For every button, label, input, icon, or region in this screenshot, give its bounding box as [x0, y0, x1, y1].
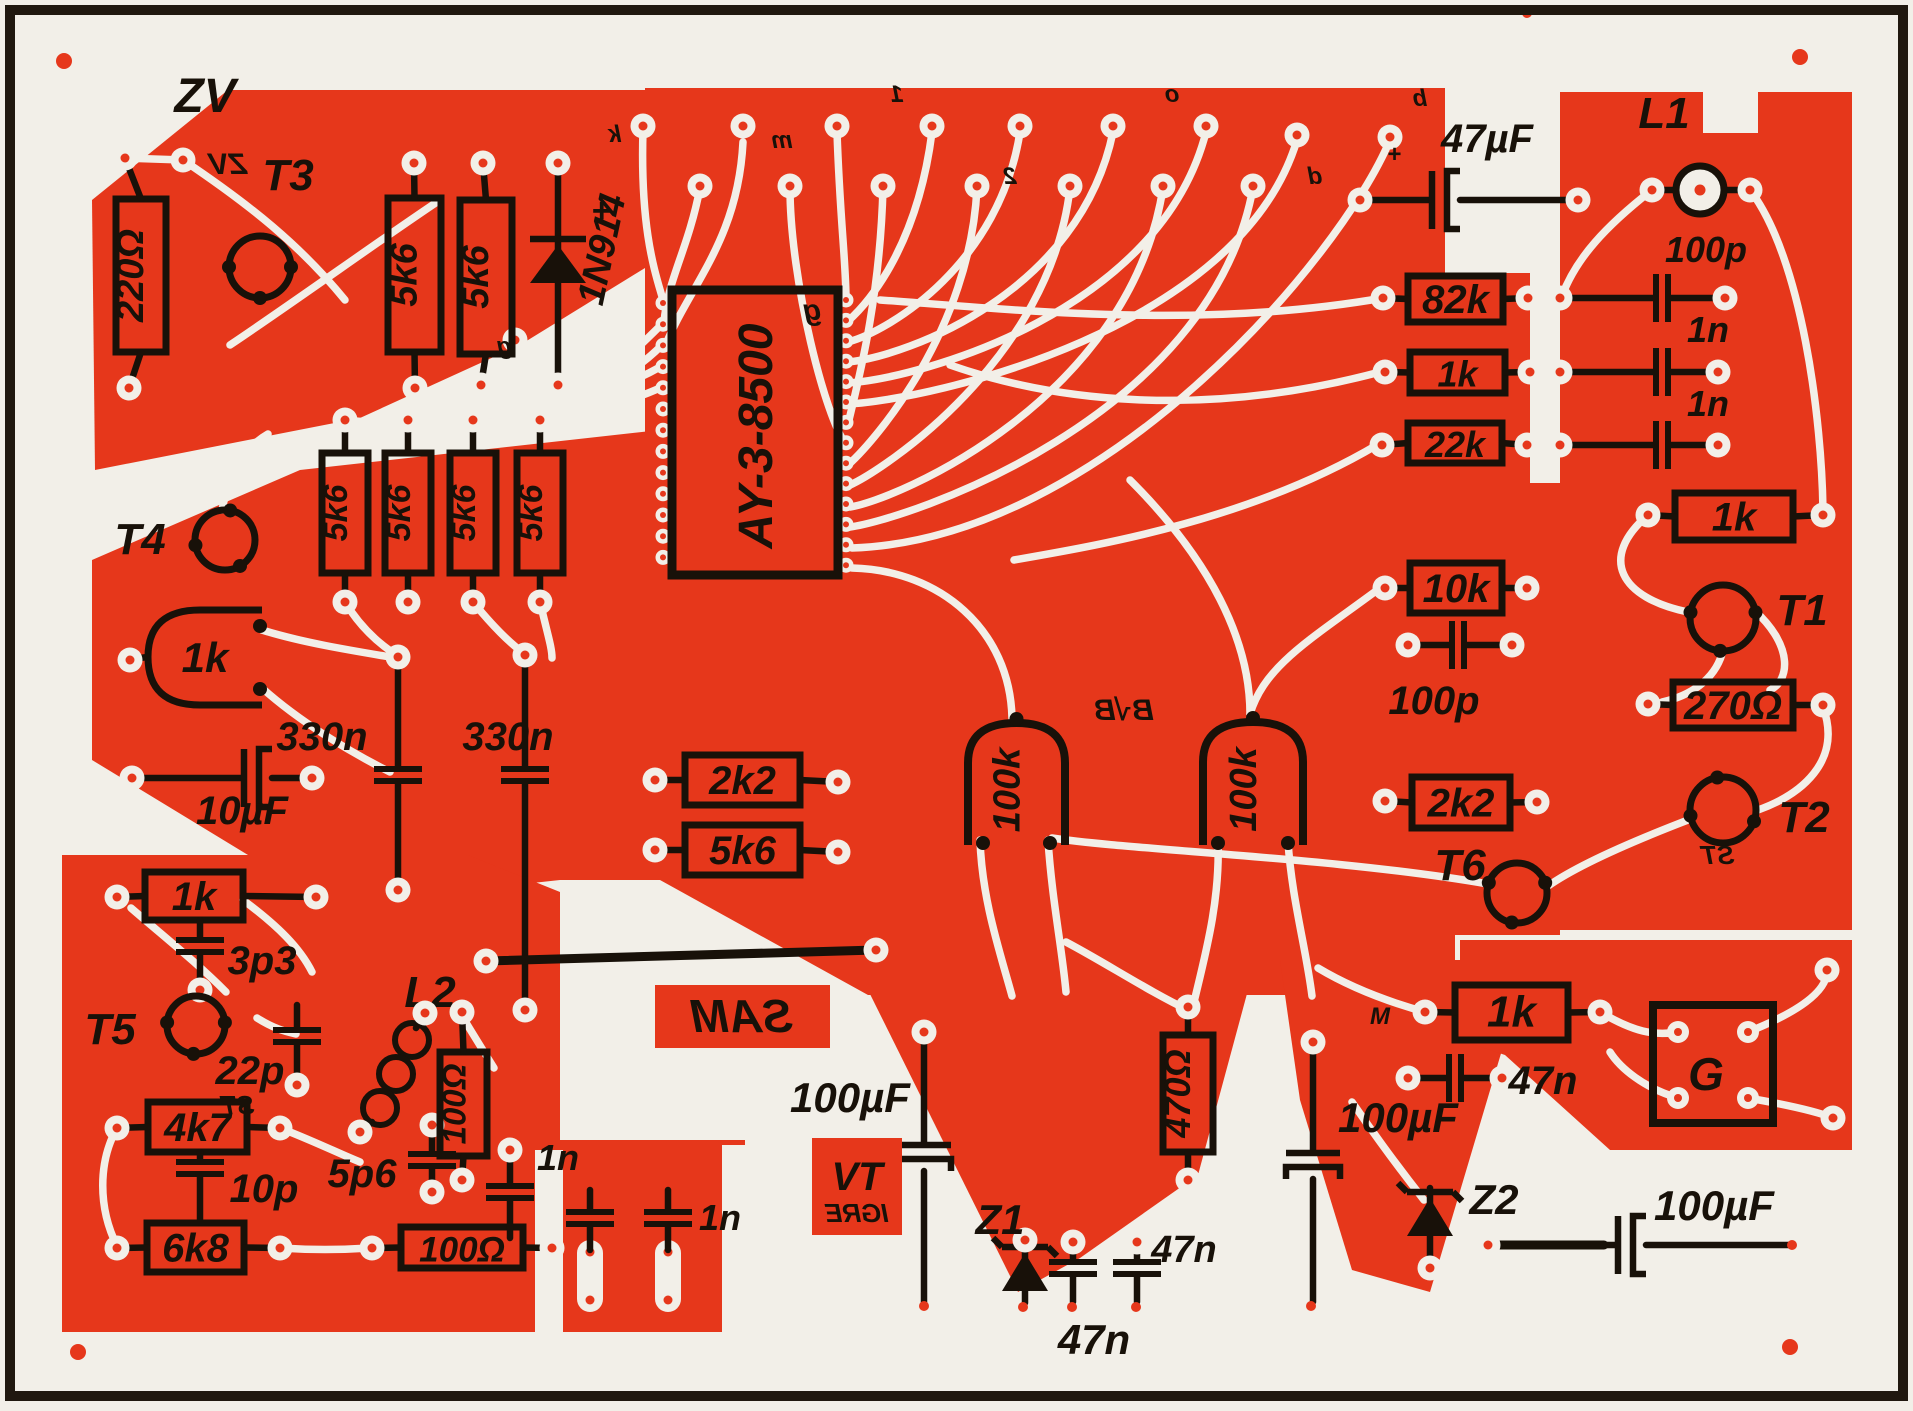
cap-47n-bottom-label: 47n: [1057, 1316, 1130, 1363]
cap-47n-c-label: 47n: [1508, 1059, 1578, 1103]
resistor-1k-top-value: 1k: [1437, 354, 1479, 395]
pad-hole: [521, 651, 530, 660]
resistor-1k-right-value: 1k: [1712, 496, 1758, 540]
resistor-6k8-value: 6k8: [162, 1227, 229, 1271]
designator-t6: T6: [1434, 841, 1486, 890]
cap-330n-2-label: 330n: [462, 715, 553, 759]
pad-hole: [506, 1146, 515, 1155]
resistor-2k2-right-value: 2k2: [1427, 782, 1495, 826]
pad-hole: [1819, 701, 1828, 710]
pad-hole: [843, 542, 849, 548]
pad-hole: [458, 1176, 467, 1185]
pad-hole: [1404, 1074, 1413, 1083]
logo-vt-text: VT: [831, 1155, 886, 1199]
pad-hole: [1596, 1008, 1605, 1017]
designator-z1: Z1: [974, 1196, 1024, 1243]
resistor-5k6-3-value: 5k6: [317, 484, 355, 542]
pad-hole: [312, 893, 321, 902]
pad-hole: [479, 159, 488, 168]
designator-t5: T5: [84, 1005, 136, 1054]
designator-l1: L1: [1638, 89, 1689, 138]
pad-hole: [482, 957, 491, 966]
pad-hole: [394, 653, 403, 662]
cap-10uf-label: 10µF: [196, 789, 290, 833]
pad-hole: [651, 846, 660, 855]
logo-vt-igre: VTIGRE: [812, 1138, 902, 1235]
silk-pad-letter: d: [1306, 163, 1322, 190]
pad-hole: [1674, 1028, 1682, 1036]
transistor-pin: [1713, 644, 1727, 658]
pad-hole: [1644, 511, 1653, 520]
designator-zv: ZV: [172, 70, 239, 123]
pad-hole: [1744, 1094, 1752, 1102]
pad-hole: [536, 416, 545, 425]
pad-hole: [1498, 1074, 1507, 1083]
transistor-pin: [1747, 814, 1761, 828]
pad-hole: [1523, 584, 1532, 593]
trimmer-1k-value: 1k: [182, 634, 231, 681]
pad-hole: [428, 1188, 437, 1197]
resistor-5k6-6-value: 5k6: [512, 484, 550, 542]
cap-100uf-b-label: 100µF: [1338, 1094, 1459, 1141]
pad-hole: [843, 338, 849, 344]
pad-hole: [843, 440, 849, 446]
cap-3p3-label: 3p3: [228, 939, 297, 983]
pad-hole: [1381, 368, 1390, 377]
pad-hole: [843, 419, 849, 425]
transistor-pin: [160, 1015, 174, 1029]
pad-hole: [1508, 641, 1517, 650]
pad-hole: [843, 379, 849, 385]
transistor-pin: [1684, 809, 1698, 823]
transistor-pin: [1748, 605, 1762, 619]
pad-hole: [1069, 1238, 1078, 1247]
pad-hole: [548, 1244, 557, 1253]
drill-mark: [1787, 1240, 1797, 1250]
pad-hole: [1556, 368, 1565, 377]
silk-pad-letter: 2: [1003, 163, 1018, 190]
cap-22p-label: 22p: [215, 1049, 285, 1093]
pad-hole: [1293, 131, 1302, 140]
pad-hole: [1016, 122, 1025, 131]
silk-pad-letter: k: [607, 121, 622, 148]
resistor-5k6-1-value: 5k6: [384, 242, 426, 306]
pad-hole: [394, 886, 403, 895]
pad-hole: [368, 1244, 377, 1253]
transistor-pin: [188, 538, 202, 552]
ic-part-number: AY-3-8500: [730, 323, 783, 549]
pad-hole: [1381, 797, 1390, 806]
routing-gap: [722, 1145, 745, 1335]
pad-hole: [843, 358, 849, 364]
cap-47n-b-label: 47n: [1150, 1229, 1216, 1271]
cap-1n-1-label: 1n: [1687, 309, 1729, 350]
transistor-pin: [186, 1047, 200, 1061]
registration-dot: [1792, 49, 1808, 65]
pad-hole: [660, 448, 666, 454]
resistor-2k2-center-value: 2k2: [708, 759, 776, 803]
pad-hole: [843, 521, 849, 527]
pad-hole: [356, 1128, 365, 1137]
silk-p: g: [496, 333, 512, 360]
silk-pad-letter: m: [771, 127, 792, 154]
resistor-100ohm-v-value: 100Ω: [436, 1063, 473, 1144]
pad-hole: [1648, 186, 1657, 195]
pad-hole: [1426, 1264, 1435, 1273]
pad-hole: [1744, 1028, 1752, 1036]
pad-hole: [1746, 186, 1755, 195]
drill-mark: [1131, 1302, 1141, 1312]
pad-hole: [276, 1244, 285, 1253]
pcb-board-artwork: ZVZV220ΩT35k65k61N914+gAY-3-8500g47µFL18…: [0, 0, 1913, 1411]
pad-hole: [739, 122, 748, 131]
transistor-pin: [1482, 876, 1496, 890]
pad-hole: [1356, 196, 1365, 205]
cap-1n-c-label: 1n: [699, 1197, 741, 1238]
pad-hole: [843, 501, 849, 507]
copper-pour: [92, 430, 660, 905]
pad-hole: [660, 533, 666, 539]
resistor-10k-value: 10k: [1423, 567, 1491, 611]
logo-sam: SAM: [655, 985, 830, 1048]
resistor-220ohm-value: 220Ω: [110, 229, 152, 323]
resistor-82k-value: 82k: [1422, 278, 1490, 322]
pad-hole: [1184, 1176, 1193, 1185]
resistor-100ohm-h-value: 100Ω: [419, 1231, 505, 1270]
pad-hole: [404, 598, 413, 607]
resistor-5k6-center-value: 5k6: [709, 829, 776, 873]
cap-47uf-label: 47µF: [1440, 117, 1535, 161]
pad-hole: [477, 381, 486, 390]
registration-dot: [1782, 1339, 1798, 1355]
logo-igre-text: IGRE: [825, 1198, 889, 1228]
cap-1n-a-label: 1n: [537, 1137, 579, 1178]
cap-1n-2-label: 1n: [1687, 383, 1729, 424]
pad-hole: [879, 182, 888, 191]
silk-m: M: [1370, 1003, 1391, 1030]
pot-100k-1-value: 100k: [987, 746, 1029, 832]
designator-z2: Z2: [1468, 1176, 1518, 1223]
pcb-layout-page: ZVZV220ΩT35k65k61N914+gAY-3-8500g47µFL18…: [0, 0, 1913, 1411]
transistor-pin: [284, 260, 298, 274]
pad-hole: [1526, 368, 1535, 377]
pad-hole: [843, 481, 849, 487]
cap-5p6-label: 5p6: [328, 1152, 398, 1196]
transistor-pin: [1710, 771, 1724, 785]
pad-hole: [660, 385, 666, 391]
pad-hole: [1524, 294, 1533, 303]
pad-hole: [660, 406, 666, 412]
resistor-1k-br-value: 1k: [1487, 988, 1538, 1037]
lead-100uf-c: [1476, 1233, 1605, 1258]
transistor-pin: [223, 503, 237, 517]
resistor-4k7-value: 4k7: [163, 1106, 232, 1150]
transistor-pin: [218, 1015, 232, 1029]
pad-hole: [1574, 196, 1583, 205]
pad-hole: [1404, 641, 1413, 650]
cap-100p-mid-label: 100p: [1388, 679, 1479, 723]
drill-mark: [1306, 1301, 1316, 1311]
designator-t2: T2: [1778, 793, 1830, 842]
pad-hole: [973, 182, 982, 191]
pad-hole: [843, 399, 849, 405]
designator-t1: T1: [1776, 586, 1827, 635]
pad-hole: [554, 381, 563, 390]
cap-100p-top-label: 100p: [1665, 229, 1747, 270]
pad-hole: [125, 384, 134, 393]
logo-bvb: B√B: [1094, 694, 1154, 727]
cap-10p-label: 10p: [230, 1167, 299, 1211]
pad-hole: [660, 321, 666, 327]
routing-gap: [1703, 88, 1758, 133]
pad-hole: [1523, 441, 1532, 450]
silk-pad-letter: 1: [890, 81, 903, 108]
pad-hole: [293, 1081, 302, 1090]
pad-hole: [1249, 182, 1258, 191]
drill-mark: [919, 1301, 929, 1311]
pad-hole: [113, 893, 122, 902]
resistor-5k6-4-value: 5k6: [380, 484, 418, 542]
pad-hole: [1823, 966, 1832, 975]
resistor-5k6-2-value: 5k6: [455, 244, 497, 308]
transistor-pin: [233, 559, 247, 573]
pad-hole: [660, 554, 666, 560]
pad-hole: [660, 427, 666, 433]
pad-hole: [1109, 122, 1118, 131]
pad-hole: [536, 598, 545, 607]
pad-hole: [276, 1124, 285, 1133]
pad-hole: [1674, 1094, 1682, 1102]
pad-hole: [660, 470, 666, 476]
pad-hole: [843, 317, 849, 323]
pot-100k-2-value: 100k: [1223, 745, 1265, 831]
pad-hole: [1202, 122, 1211, 131]
pad-hole: [1133, 1238, 1142, 1247]
pad-hole: [128, 774, 137, 783]
pad-hole: [920, 1028, 929, 1037]
pad-hole: [843, 297, 849, 303]
silk-pad-letter: o: [1165, 81, 1180, 108]
transistor-pin: [1684, 605, 1698, 619]
pad-hole: [469, 598, 478, 607]
pad-hole: [1484, 1241, 1493, 1250]
silk-t2-mirror: ST: [1699, 840, 1734, 870]
pad-hole: [833, 122, 842, 131]
silk-zv-mirror: ZV: [206, 148, 248, 181]
copper-pour: [645, 88, 1460, 270]
pad-hole: [521, 1006, 530, 1015]
pad-hole: [1378, 441, 1387, 450]
pad-hole: [660, 300, 666, 306]
silk-pad-letter: b: [1413, 85, 1428, 112]
resistor-270ohm-value: 270Ω: [1683, 684, 1782, 728]
pad-hole: [664, 1296, 673, 1305]
copper-trace: [280, 1248, 370, 1250]
pad-hole: [411, 384, 420, 393]
pad-hole: [126, 656, 135, 665]
pad-hole: [586, 1296, 595, 1305]
transistor-pin: [222, 260, 236, 274]
pad-hole: [660, 364, 666, 370]
pad-hole: [121, 154, 130, 163]
pad-hole: [928, 122, 937, 131]
pad-hole: [639, 122, 648, 131]
pad-hole: [843, 562, 849, 568]
pad-hole: [179, 156, 188, 165]
pad-hole: [113, 1124, 122, 1133]
pad-hole: [1556, 294, 1565, 303]
transistor-pin: [253, 291, 267, 305]
registration-dot: [70, 1344, 86, 1360]
pad-hole: [1159, 182, 1168, 191]
pad-hole: [660, 491, 666, 497]
pad-hole: [1714, 368, 1723, 377]
ic-pin-mark: g: [803, 294, 822, 327]
pad-hole: [1379, 294, 1388, 303]
pad-hole: [341, 598, 350, 607]
silk-pad-letter: +: [1388, 141, 1402, 168]
pad-hole: [1381, 584, 1390, 593]
cap-100uf-c-label: 100µF: [1654, 1182, 1775, 1229]
pad-hole: [786, 182, 795, 191]
pad-hole: [308, 774, 317, 783]
pad-hole: [410, 159, 419, 168]
pad-hole: [1556, 441, 1565, 450]
pad-hole: [1714, 441, 1723, 450]
pad-hole: [1829, 1114, 1838, 1123]
resistor-470ohm-value: 470Ω: [1157, 1049, 1198, 1138]
pad-hole: [1721, 294, 1730, 303]
pad-hole: [1184, 1003, 1193, 1012]
pad-hole: [1533, 798, 1542, 807]
designator-t3: T3: [262, 151, 313, 200]
pad-hole: [651, 776, 660, 785]
cap-330n-1-label: 330n: [276, 715, 367, 759]
pad-hole: [469, 416, 478, 425]
drill-mark: [1067, 1302, 1077, 1312]
resistor-22k-value: 22k: [1424, 424, 1487, 465]
pad-hole: [1644, 700, 1653, 709]
pad-hole: [696, 182, 705, 191]
pad-hole: [1066, 182, 1075, 191]
resistor-1k-bl-value: 1k: [172, 875, 218, 919]
pad-hole: [660, 342, 666, 348]
pad-hole: [404, 416, 413, 425]
logo-sam-text: SAM: [689, 990, 793, 1042]
drill-mark: [1018, 1302, 1028, 1312]
registration-dot: [56, 53, 72, 69]
pad-hole: [1421, 1008, 1430, 1017]
pad-hole: [1819, 511, 1828, 520]
designator-t4: T4: [114, 515, 165, 564]
pad-hole: [834, 778, 843, 787]
pad-hole: [872, 946, 881, 955]
transistor-pin: [1505, 916, 1519, 930]
resistor-5k6-5-value: 5k6: [445, 484, 483, 542]
pad-hole: [554, 159, 563, 168]
pad-hole: [1309, 1038, 1318, 1047]
pad-hole: [421, 1009, 430, 1018]
pad-hole: [660, 512, 666, 518]
pad-hole: [341, 416, 350, 425]
diode-plus-mark: +: [591, 192, 611, 230]
pad-hole: [834, 848, 843, 857]
pad-hole: [843, 460, 849, 466]
cap-100uf-a-label: 100µF: [790, 1074, 911, 1121]
pad-hole: [458, 1008, 467, 1017]
pad-hole: [113, 1244, 122, 1253]
connector-g-label: G: [1688, 1048, 1724, 1100]
transistor-pin: [1538, 876, 1552, 890]
